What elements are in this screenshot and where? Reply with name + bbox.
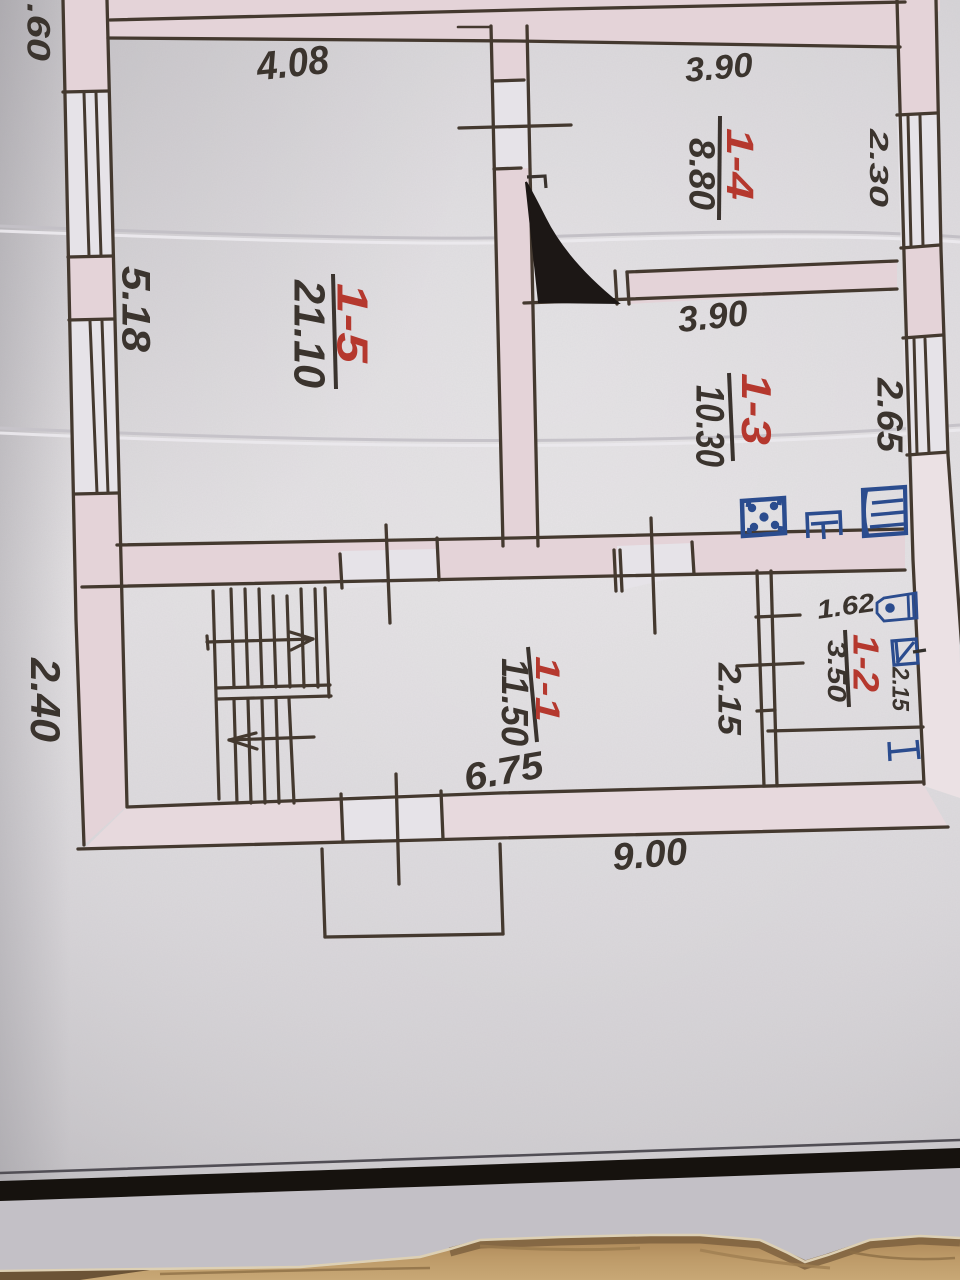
svg-text:3.90: 3.90 xyxy=(683,46,754,90)
svg-text:2.65: 2.65 xyxy=(869,377,910,453)
svg-text:1-3: 1-3 xyxy=(733,373,780,445)
svg-text:2.15: 2.15 xyxy=(887,666,914,712)
svg-text:2.30: 2.30 xyxy=(864,127,894,207)
svg-text:1-4: 1-4 xyxy=(718,128,760,200)
svg-text:2.40: 2.40 xyxy=(22,657,69,742)
svg-text:21.10: 21.10 xyxy=(284,279,333,388)
svg-text:10.30: 10.30 xyxy=(687,385,731,467)
svg-text:3.90: 3.90 xyxy=(676,292,750,340)
svg-text:5.18: 5.18 xyxy=(113,266,157,353)
svg-text:1-5: 1-5 xyxy=(327,283,376,364)
svg-text:4.08: 4.08 xyxy=(254,38,332,89)
svg-text:11.50: 11.50 xyxy=(493,658,535,746)
svg-text:2.15: 2.15 xyxy=(712,662,748,737)
svg-text:3.50: 3.50 xyxy=(822,640,852,703)
svg-text:9.00: 9.00 xyxy=(611,831,689,879)
svg-text:8.80: 8.80 xyxy=(681,138,722,210)
svg-text:.60: .60 xyxy=(21,3,57,61)
